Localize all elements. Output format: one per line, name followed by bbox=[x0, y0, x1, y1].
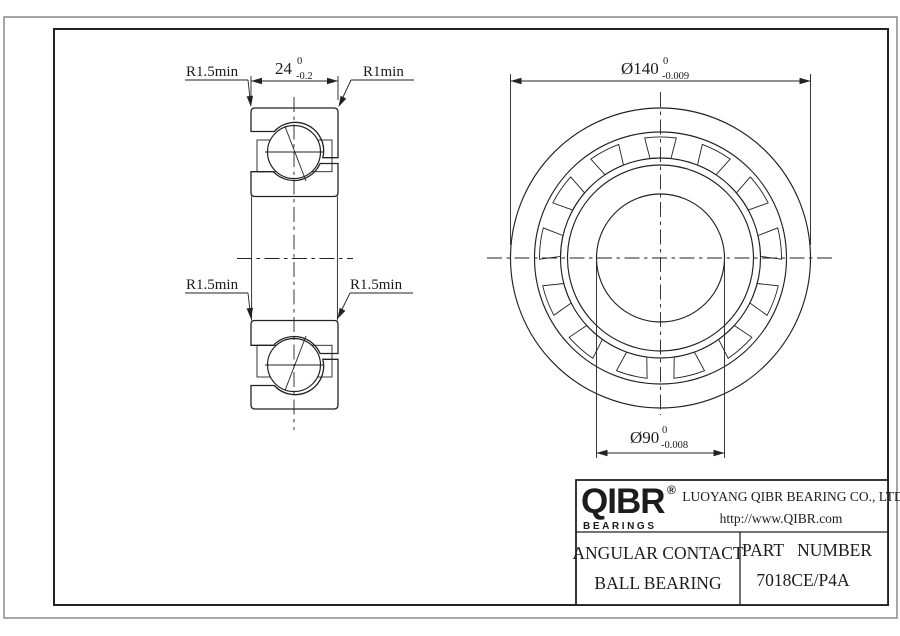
radius-label-top-left: R1.5min bbox=[186, 64, 239, 80]
company-website: http://www.QIBR.com bbox=[720, 511, 843, 526]
radius-label-bottom-right: R1.5min bbox=[350, 277, 403, 293]
radius-label-top-right: R1min bbox=[363, 64, 404, 80]
bearing-drawing-svg: 24 0 -0.2 R1.5min R1min R1.5min R1.5min bbox=[0, 0, 900, 636]
front-view bbox=[487, 92, 836, 415]
od-dim-tol-lower: -0.009 bbox=[662, 71, 689, 82]
logo-tagline: BEARINGS bbox=[583, 521, 657, 532]
company-name: LUOYANG QIBR BEARING CO., LTD bbox=[682, 489, 900, 504]
width-dim-tol-lower: -0.2 bbox=[296, 71, 313, 82]
dim-arrow-left bbox=[251, 78, 262, 84]
od-dim-value: Ø140 bbox=[621, 59, 659, 78]
leader-arrow bbox=[338, 308, 346, 319]
dim-arrow-right bbox=[327, 78, 338, 84]
bore-dim-value: Ø90 bbox=[630, 428, 659, 447]
product-name-line2: BALL BEARING bbox=[594, 573, 722, 593]
radius-callouts: R1.5min R1min R1.5min R1.5min bbox=[185, 64, 414, 319]
width-dim-value: 24 bbox=[275, 59, 293, 78]
drawing-sheet: 24 0 -0.2 R1.5min R1min R1.5min R1.5min bbox=[0, 0, 900, 636]
bore-dim-tol-upper: 0 bbox=[662, 425, 667, 436]
radius-label-bottom-left: R1.5min bbox=[186, 277, 239, 293]
dim-arrow-right bbox=[714, 450, 725, 456]
logo-text: QIBR bbox=[581, 482, 665, 521]
section-view bbox=[237, 97, 353, 430]
part-number-value: 7018CE/P4A bbox=[756, 570, 850, 590]
bore-dim-tol-lower: -0.008 bbox=[661, 440, 688, 451]
width-dim-tol-upper: 0 bbox=[297, 56, 302, 67]
width-dimension: 24 0 -0.2 bbox=[251, 56, 338, 100]
title-block: QIBR ® BEARINGS LUOYANG QIBR BEARING CO.… bbox=[572, 480, 900, 605]
product-name-line1: ANGULAR CONTACT bbox=[572, 543, 743, 563]
leader-arrow bbox=[247, 96, 253, 107]
leader-arrow bbox=[339, 96, 347, 107]
dim-arrow-left bbox=[511, 78, 522, 84]
od-dim-tol-upper: 0 bbox=[663, 56, 668, 67]
dim-arrow-left bbox=[597, 450, 608, 456]
dim-arrow-right bbox=[800, 78, 811, 84]
part-number-label: PART NUMBER bbox=[742, 540, 872, 560]
registered-trademark-icon: ® bbox=[667, 483, 676, 497]
